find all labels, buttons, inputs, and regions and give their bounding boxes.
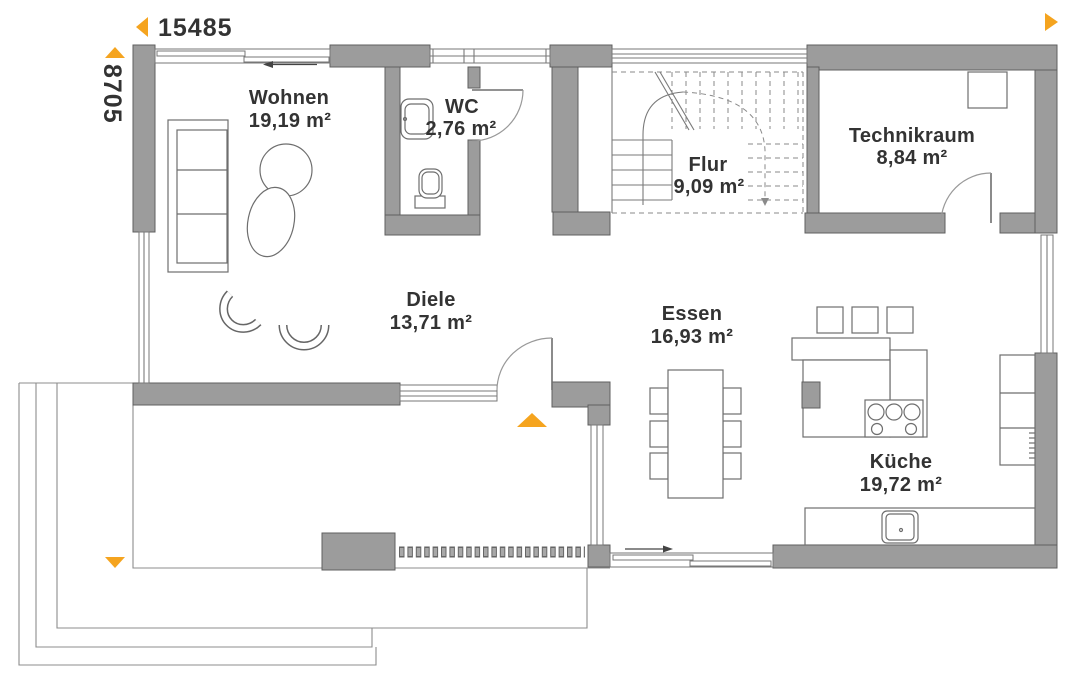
room-area-kueche: 19,72 m² [860,474,942,496]
dimension-arrow-down-icon [105,557,125,568]
kitchen-sink [882,511,918,543]
room-label-kueche: Küche [870,451,933,473]
room-label-diele: Diele [406,289,455,311]
bar-stools [817,307,913,333]
right-window [1041,235,1053,353]
floor-plan-drawing: 15485 8705 Wohnen 19,19 m² WC 2,76 m² Fl… [0,0,1080,698]
entrance-window [400,385,497,401]
room-label-flur: Flur [689,154,728,176]
wc-window [430,49,550,63]
essen-window [591,425,603,545]
room-label-wc: WC [445,96,479,118]
terrace-pillar [322,533,395,570]
side-table-round [260,144,312,196]
kitchen-island [792,338,927,437]
room-area-flur: 9,09 m² [673,176,744,198]
stair-window [612,49,807,63]
floor-plan: 15485 8705 Wohnen 19,19 m² WC 2,76 m² Fl… [0,0,1080,698]
cooktop [865,400,923,437]
sofa [168,120,228,272]
kitchen-counter-bottom [805,508,1035,545]
technik-equipment [968,72,1007,108]
entrance-door [497,338,552,390]
room-area-technikraum: 8,84 m² [876,147,947,169]
technikraum-door [941,173,991,223]
dimension-arrow-right-icon [1045,13,1058,31]
dimension-height: 8705 [98,47,126,568]
dimension-width-label: 15485 [158,14,233,42]
room-label-wohnen: Wohnen [249,87,329,109]
entrance-marker-icon [517,413,547,427]
stair-direction-arrow-icon [761,198,769,206]
room-area-diele: 13,71 m² [390,312,472,334]
left-window [139,232,149,383]
dimension-arrow-up-icon [105,47,125,58]
sliding-window-top [155,49,330,68]
sliding-door-bottom [610,546,773,568]
kitchen-counter-right [1000,355,1035,465]
dimension-arrow-left-icon [136,17,148,37]
room-area-essen: 16,93 m² [651,326,733,348]
slide-right-arrow-icon [663,546,673,553]
dimension-height-label: 8705 [98,64,126,124]
room-label-essen: Essen [662,303,722,325]
room-label-technikraum: Technikraum [849,125,975,147]
room-area-wc: 2,76 m² [425,118,496,140]
armchair-1 [215,294,258,337]
dimension-width: 15485 [136,13,1058,42]
armchair-2 [283,325,325,346]
dining-set [650,370,741,498]
wc-toilet [415,169,445,208]
room-area-wohnen: 19,19 m² [249,110,331,132]
